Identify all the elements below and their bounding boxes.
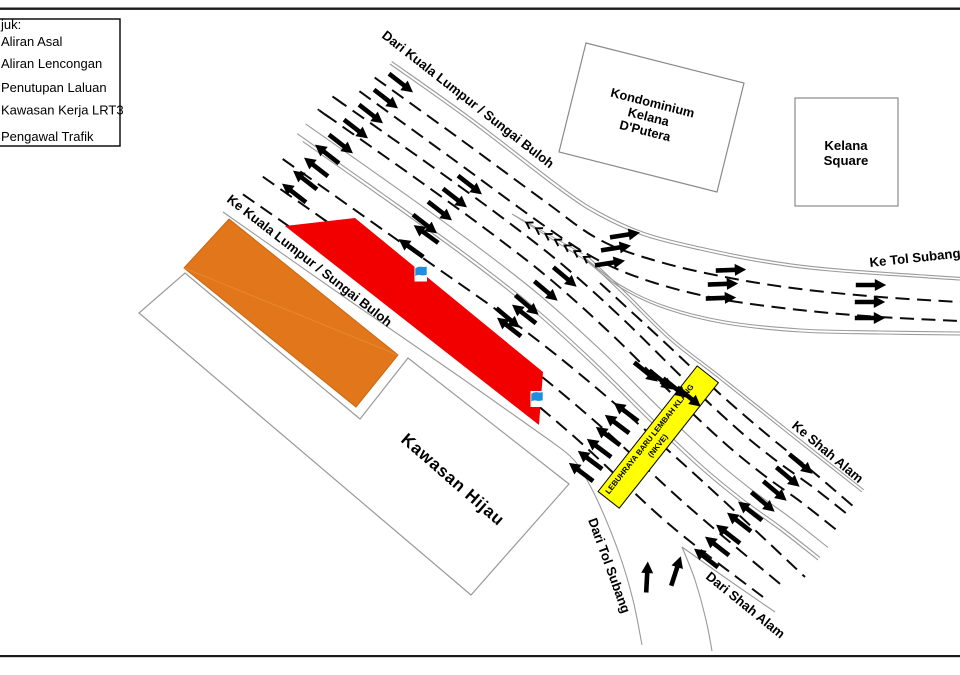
svg-text:Aliran Lencongan: Aliran Lencongan bbox=[1, 56, 102, 71]
svg-text:juk:: juk: bbox=[0, 17, 21, 32]
svg-text:Pengawal Trafik: Pengawal Trafik bbox=[1, 129, 94, 144]
svg-text:Kawasan Kerja LRT3: Kawasan Kerja LRT3 bbox=[1, 103, 124, 118]
svg-text:Square: Square bbox=[824, 153, 869, 168]
svg-text:Penutupan Laluan: Penutupan Laluan bbox=[1, 80, 107, 95]
svg-text:Aliran Asal: Aliran Asal bbox=[1, 34, 63, 49]
svg-text:Kelana: Kelana bbox=[824, 138, 868, 153]
